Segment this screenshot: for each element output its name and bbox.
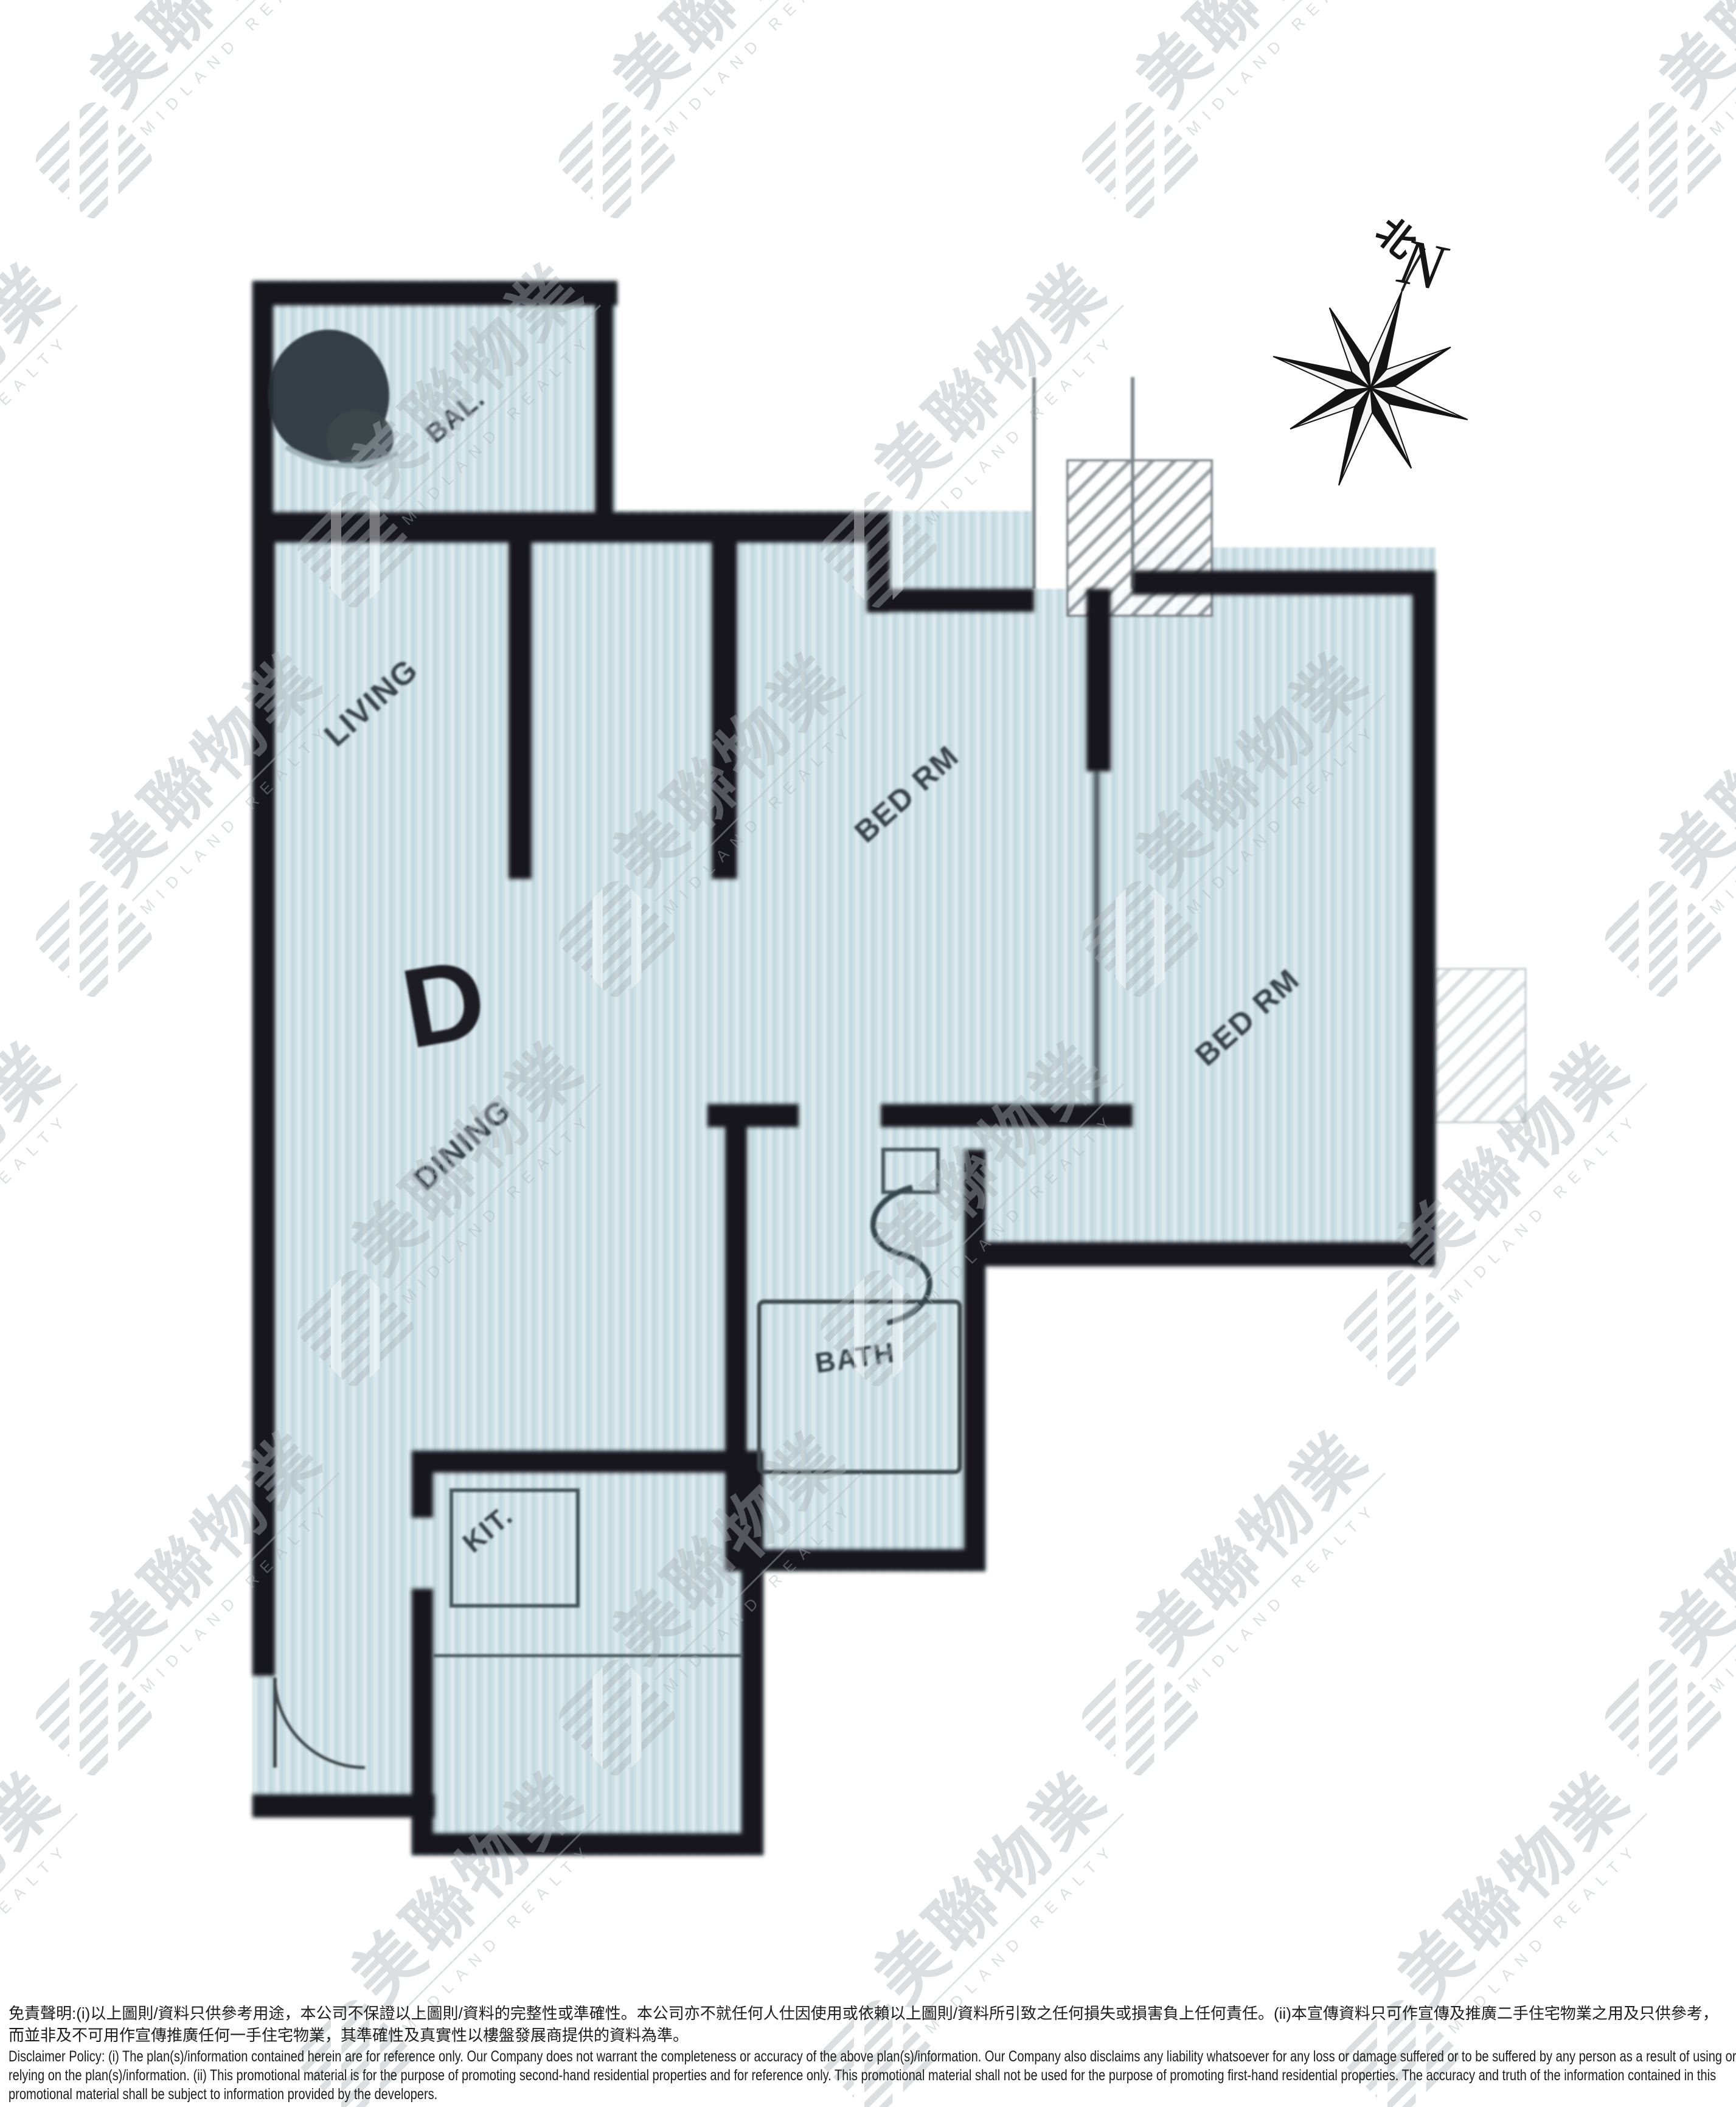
bedroom1-bottom-wall-b <box>881 1104 1133 1127</box>
kitchen-left-wall-b <box>412 1589 433 1855</box>
kitchen-top-wall <box>412 1451 747 1473</box>
bath-bottom-wall <box>725 1549 985 1571</box>
bedroom2-top-wall <box>1133 571 1436 595</box>
floor-plan: BAL. LIVING D DINING BED RM BED RM BATH … <box>0 0 1736 2107</box>
living-dining-floor <box>252 511 747 1472</box>
bedroom1-floor-ext <box>1034 589 1133 1126</box>
left-outer-wall <box>252 512 275 1676</box>
bath-right-wall <box>964 1150 985 1571</box>
ac-platform-right <box>1436 969 1526 1122</box>
compass-light-points <box>1241 259 1499 516</box>
bedroom1-left-wall <box>712 512 737 879</box>
bedroom-divider-wall <box>1086 589 1111 771</box>
compass-rose: 北 N <box>1241 210 1513 516</box>
balcony-top-wall <box>252 281 617 305</box>
foyer-wall <box>509 535 532 879</box>
balcony-right-wall <box>595 281 613 536</box>
bedroom1-bottom-wall-a <box>707 1104 799 1127</box>
main-top-wall <box>252 512 890 543</box>
bedroom2-lower-floor <box>964 1126 1414 1248</box>
bedroom-divider-door <box>1094 771 1100 1104</box>
kitchen-bottom-wall <box>412 1833 763 1855</box>
bedroom1-top-wall <box>867 589 1034 612</box>
disclaimer-english: Disclaimer Policy: (i) The plan(s)/infor… <box>9 2047 1736 2104</box>
disclaimer-chinese: 免責聲明:(i)以上圖則/資料只供參考用途，本公司不保證以上圖則/資料的完整性或… <box>9 2002 1730 2046</box>
floorplan-page: BAL. LIVING D DINING BED RM BED RM BATH … <box>0 0 1736 2107</box>
kitchen-left-wall-a <box>412 1451 433 1518</box>
bedroom2-bottom-wall <box>964 1242 1436 1266</box>
entry-bottom-wall <box>252 1794 435 1817</box>
right-outer-wall <box>1412 571 1436 1267</box>
kitchen-floor <box>412 1451 763 1855</box>
kitchen-right-wall <box>741 1451 763 1855</box>
